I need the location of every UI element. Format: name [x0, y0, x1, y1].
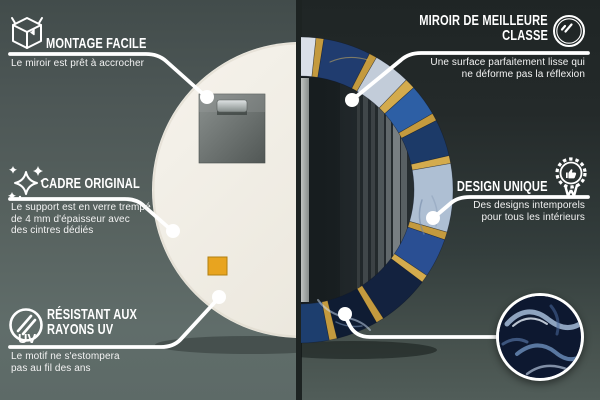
sparkles-icon [6, 164, 46, 202]
callout-subtitle: Le miroir est prêt à accrocher [11, 58, 144, 70]
award-badge-icon [553, 158, 589, 198]
uv-protection-icon: UV [6, 306, 48, 348]
callout-subtitle: Des designs intemporels pour tous les in… [473, 200, 585, 223]
mirror-side-edge [300, 78, 309, 302]
callout-title: CADRE ORIGINAL [41, 176, 175, 191]
callout-title: RÉSISTANT AUX RAYONS UV [47, 308, 169, 337]
product-infographic: MONTAGE FACILE Le miroir est prêt à accr… [0, 0, 600, 400]
uv-icon-label: UV [18, 331, 36, 346]
adhesive-pad [208, 257, 227, 275]
callout-subtitle: Une surface parfaitement lisse qui ne dé… [430, 57, 585, 80]
callout-title: MIROIR DE MEILLEURE CLASSE [374, 14, 548, 43]
callout-subtitle: Le support est en verre trempé de 4 mm d… [11, 202, 151, 237]
hanger-bracket [217, 100, 247, 112]
callout-title: DESIGN UNIQUE [425, 179, 548, 194]
pattern-detail-inset [496, 293, 584, 381]
thumbs-up-glyph [566, 169, 576, 178]
package-box-icon [8, 14, 46, 52]
mirror-shine-icon [551, 13, 587, 49]
detail-marble-texture [499, 296, 580, 377]
callout-title: MONTAGE FACILE [46, 36, 182, 51]
callout-subtitle: Le motif ne s'estompera pas au fil des a… [11, 351, 120, 374]
